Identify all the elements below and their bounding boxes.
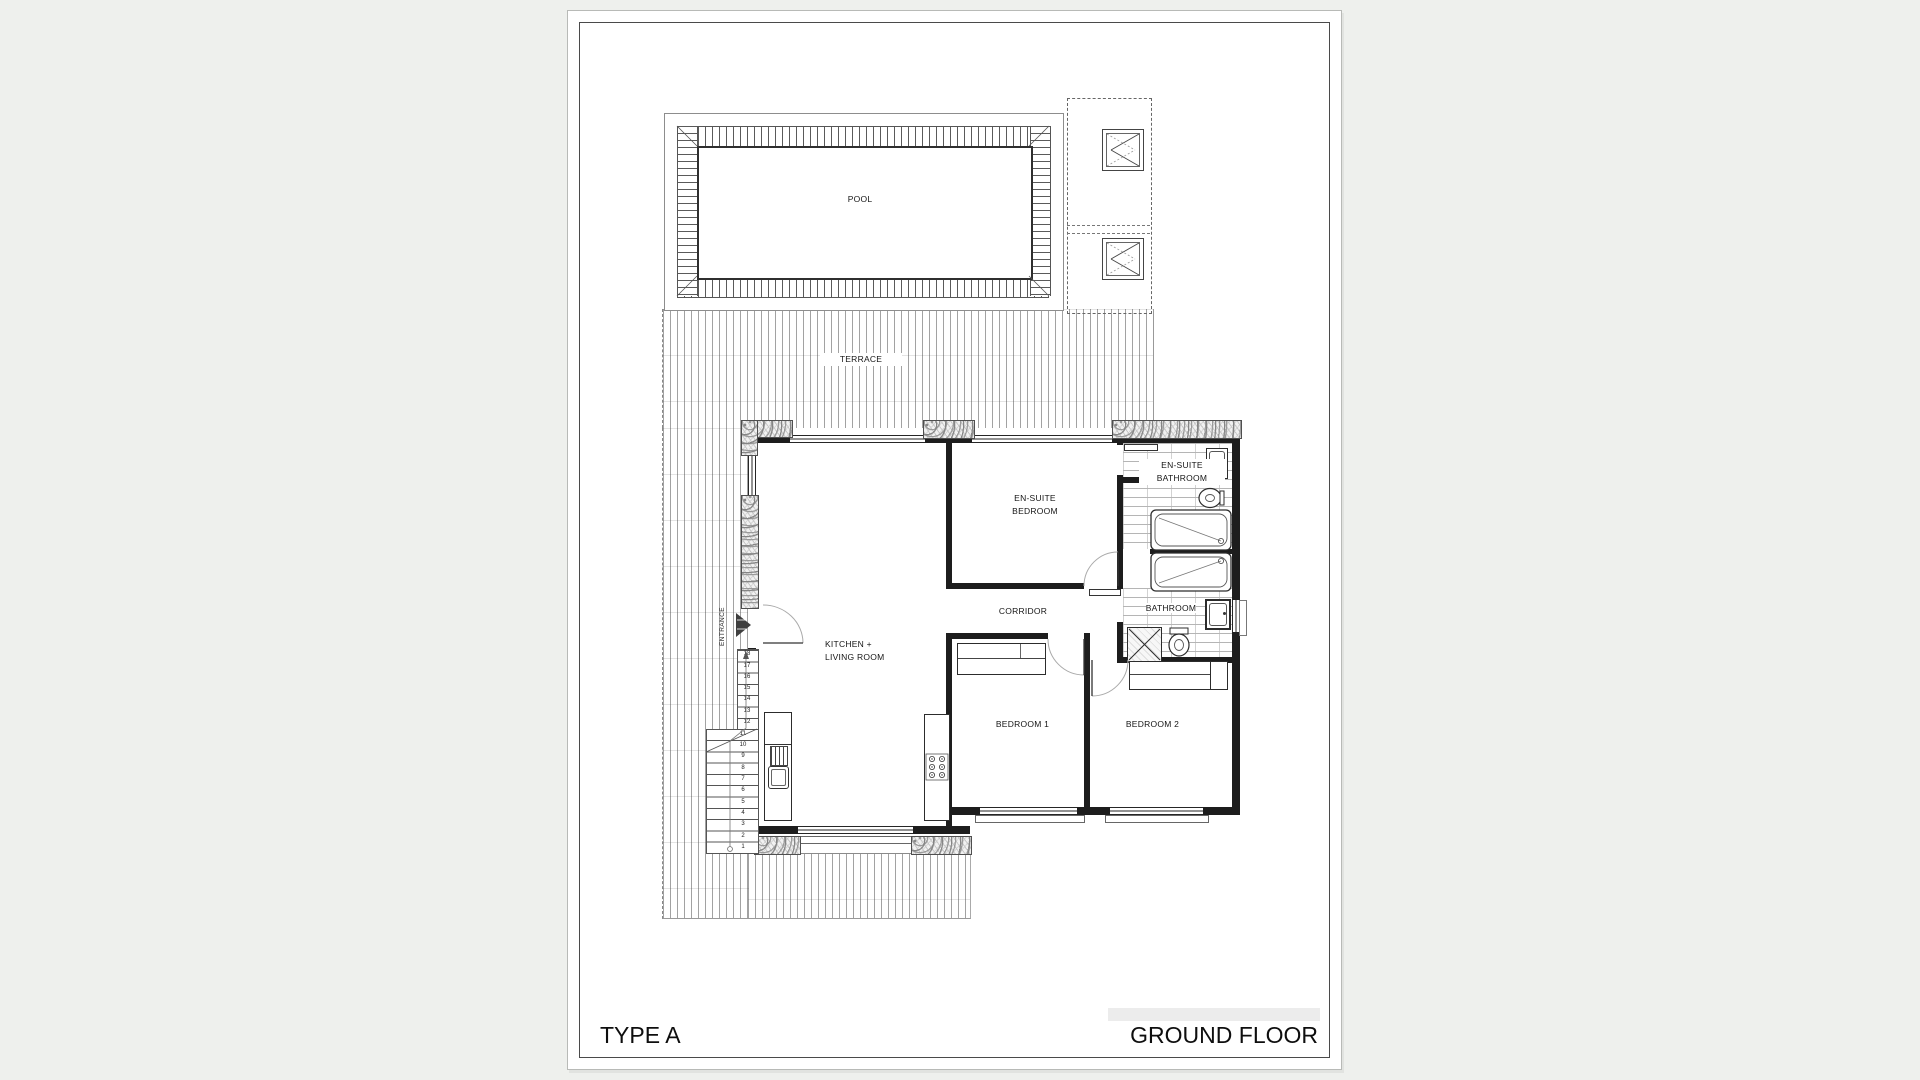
bedroom2-label: BEDROOM 2	[1105, 718, 1200, 731]
label-line: EN-SUITE	[995, 492, 1075, 505]
label-line: BEDROOM 1	[996, 719, 1049, 729]
label-line: BEDROOM	[995, 505, 1075, 518]
title-highlight	[1108, 1008, 1320, 1021]
label-line: BATHROOM	[1146, 603, 1196, 613]
label-line: BEDROOM 2	[1126, 719, 1179, 729]
plan-linework-overlay	[0, 0, 1920, 1080]
label-line: EN-SUITE	[1139, 459, 1225, 472]
label-line: LIVING ROOM	[825, 651, 895, 664]
corridor-label: CORRIDOR	[985, 605, 1061, 618]
label-line: KITCHEN +	[825, 638, 895, 651]
bedroom1-label: BEDROOM 1	[975, 718, 1070, 731]
ensuite-bathroom-label: EN-SUITE BATHROOM	[1139, 459, 1225, 485]
label-line: BATHROOM	[1139, 472, 1225, 485]
kitchen-living-label: KITCHEN + LIVING ROOM	[825, 638, 895, 664]
floor-plan-canvas: TERRACE POOL	[0, 0, 1920, 1080]
bathroom-label: BATHROOM	[1130, 602, 1212, 615]
ensuite-bedroom-label: EN-SUITE BEDROOM	[995, 492, 1075, 518]
sheet-type-title: TYPE A	[600, 1022, 681, 1049]
label-line: CORRIDOR	[999, 606, 1047, 616]
entrance-arrow-icon	[736, 613, 751, 637]
sheet-floor-title: GROUND FLOOR	[1018, 1022, 1318, 1049]
